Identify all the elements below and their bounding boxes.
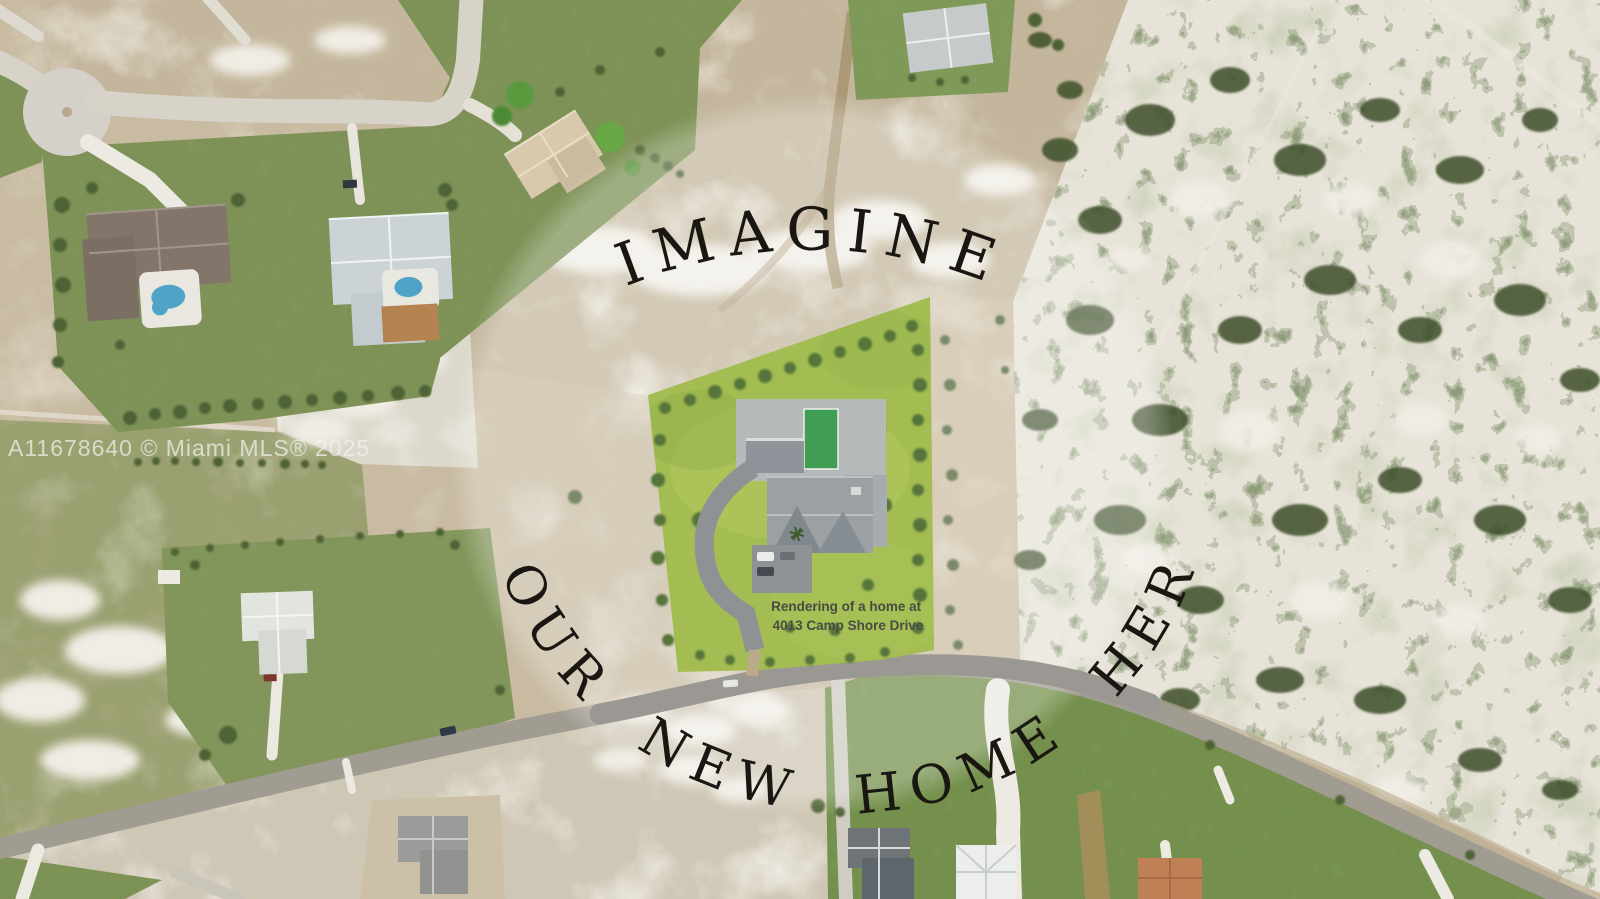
white-pad: [158, 570, 180, 584]
car: [780, 552, 795, 560]
aerial-photo-canvas: A11678640 © Miami MLS® 2025: [0, 0, 1600, 899]
house-gray-south-center: [360, 795, 505, 899]
car: [757, 567, 774, 576]
wood-deck: [381, 304, 439, 343]
rendered-pool: [804, 409, 838, 469]
mls-watermark: A11678640 © Miami MLS® 2025: [8, 435, 370, 461]
house-white-south: [956, 845, 1016, 899]
lot-entry-path: [752, 650, 755, 676]
cul-de-sac-center: [62, 107, 72, 117]
car: [757, 552, 774, 561]
house-gray-roof-ne: [903, 3, 994, 73]
chimney: [851, 487, 861, 495]
garage-roof: [746, 441, 804, 473]
driveway-house-sw: [272, 672, 278, 755]
rendering-label-line1: Rendering of a home at: [771, 599, 922, 614]
car: [343, 180, 357, 189]
car: [723, 679, 738, 687]
car: [264, 674, 277, 681]
house-orange-roof: [1138, 858, 1202, 899]
aerial-photo: A11678640 © Miami MLS® 2025: [0, 0, 1600, 899]
rendering-label-line2: 4013 Camp Shore Drive: [773, 618, 924, 633]
